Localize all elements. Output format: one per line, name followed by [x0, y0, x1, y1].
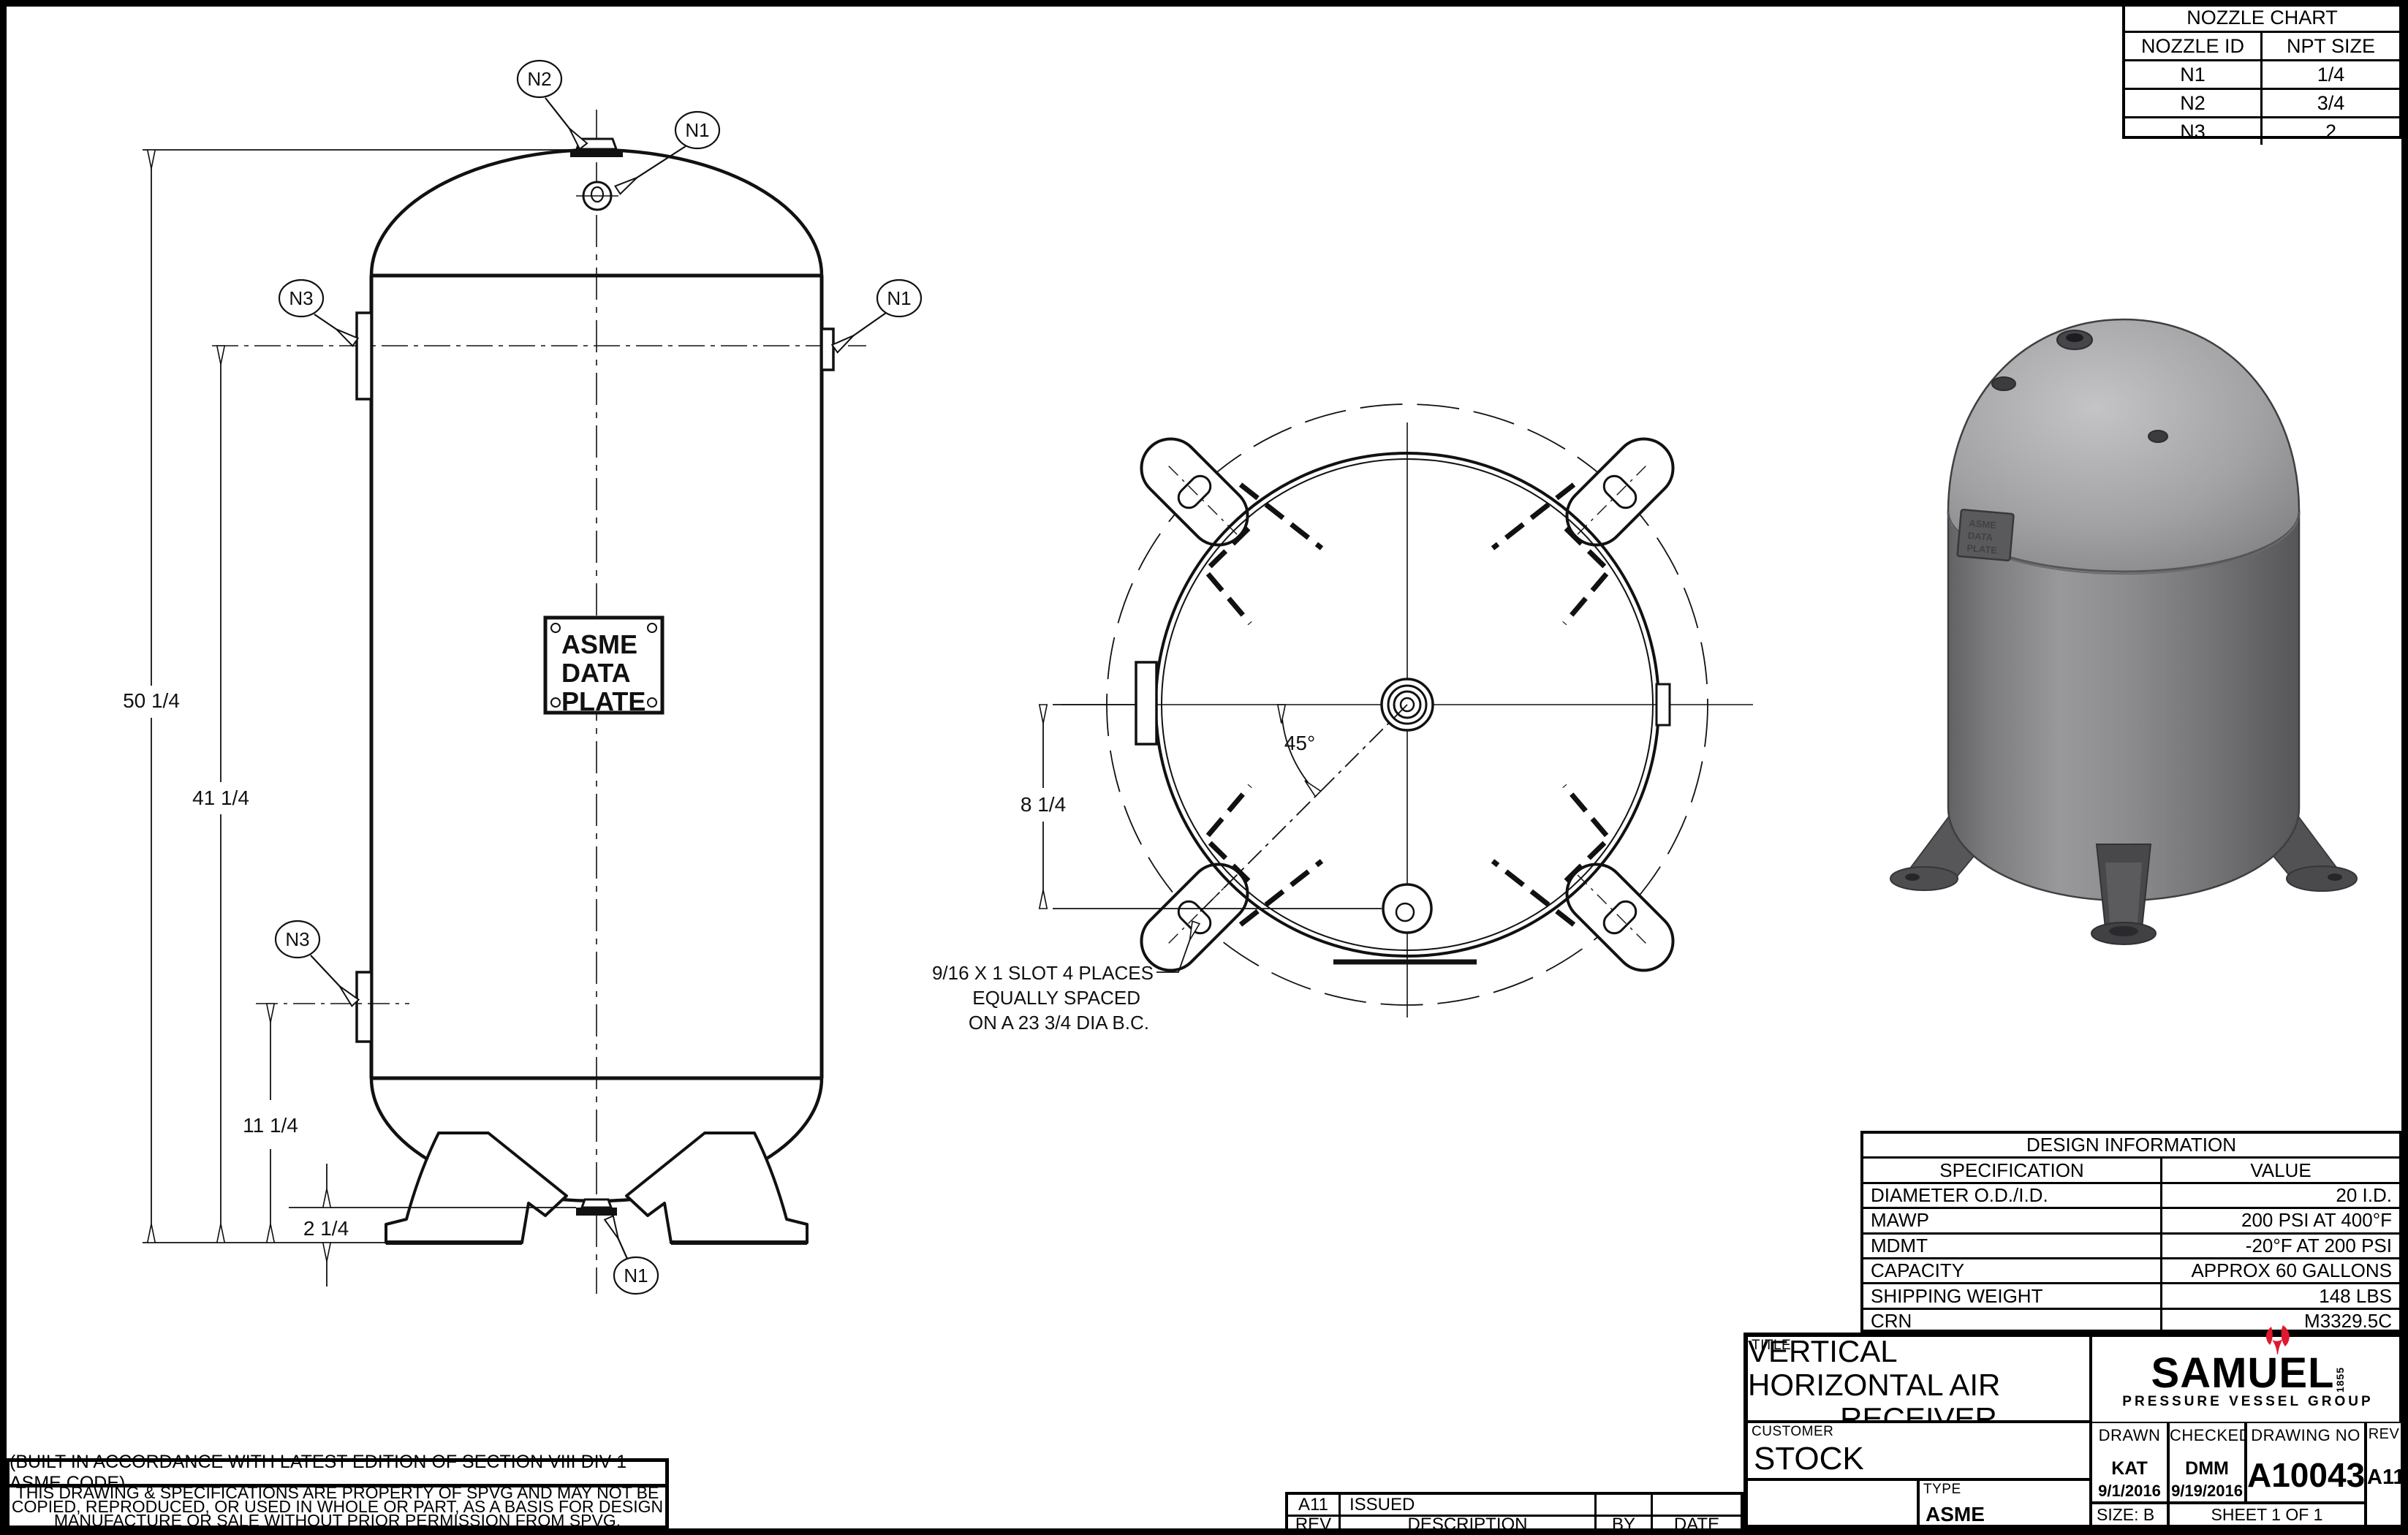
logo-cell: SAMUEL 1855 PRESSURE VESSEL GROUP [2091, 1335, 2405, 1425]
slot-note-line2: EQUALLY SPACED [972, 987, 1140, 1009]
slot-note-line1: 9/16 X 1 SLOT 4 PLACES [932, 962, 1154, 984]
drawn-by: KAT [2092, 1458, 2167, 1479]
drawing-no-value: A10043 [2247, 1455, 2364, 1495]
design-col-spec: SPECIFICATION [1863, 1159, 2162, 1181]
design-spec: MAWP [1863, 1209, 2162, 1232]
nozzle-chart-table: NOZZLE CHART NOZZLE ID NPT SIZE N1 1/4 N… [2122, 1, 2402, 139]
slot-note-line3: ON A 23 3/4 DIA B.C. [969, 1012, 1149, 1034]
property-note: THIS DRAWING & SPECIFICATIONS ARE PROPER… [6, 1487, 669, 1529]
drawing-sheet: { "nozzle_chart": { "title": "NOZZLE CHA… [0, 0, 2408, 1535]
dim-upper-text: 41 1/4 [192, 787, 249, 809]
title-cell: TITLE VERTICAL HORIZONTAL AIR RECEIVER [1746, 1335, 2091, 1422]
dim-overall-text: 50 1/4 [123, 689, 180, 712]
revision-description: ISSUED [1341, 1495, 1597, 1515]
design-spec: MDMT [1863, 1235, 2162, 1257]
checked-cell: CHECKED DMM 9/19/2016 [2168, 1422, 2246, 1503]
nozzle-id: N2 [2125, 90, 2263, 116]
dim-bc-text: 8 1/4 [1021, 793, 1066, 816]
dim-lower-text: 11 1/4 [243, 1114, 298, 1137]
nozzle-n3-upper [357, 313, 371, 399]
side-tab-left [1136, 662, 1156, 744]
rev-label: REV [2367, 1426, 2401, 1443]
iso-view: ASME DATA PLATE [1890, 319, 2357, 944]
design-spec: DIAMETER O.D./I.D. [1863, 1184, 2162, 1207]
revision-header-row: REV DESCRIPTION BY DATE [1288, 1517, 1741, 1532]
revision-by [1597, 1495, 1653, 1515]
design-row: SHIPPING WEIGHT 148 LBS [1863, 1284, 2399, 1309]
size-cell: SIZE: B [2091, 1503, 2168, 1526]
logo-name: SAMUEL [2151, 1354, 2335, 1392]
customer-cell: CUSTOMER STOCK [1746, 1422, 2091, 1479]
design-spec: CAPACITY [1863, 1259, 2162, 1282]
design-value: 20 I.D. [2162, 1184, 2399, 1207]
side-tab-right [1657, 684, 1670, 725]
design-info-title: DESIGN INFORMATION [1863, 1134, 2399, 1156]
dim-upper: 41 1/4 [192, 346, 249, 1243]
type-value: ASME [1926, 1503, 1985, 1526]
plate-text-3: PLATE [561, 686, 645, 716]
nozzle-row: N3 2 [2125, 118, 2399, 145]
nozzle-chart-col-id: NOZZLE ID [2125, 33, 2263, 59]
callout-n1-bottom: N1 [624, 1265, 648, 1286]
design-row: DIAMETER O.D./I.D. 20 I.D. [1863, 1184, 2399, 1209]
property-note-line3: MANUFACTURE OR SALE WITHOUT PRIOR PERMIS… [54, 1514, 621, 1528]
revision-header-by: BY [1597, 1517, 1653, 1532]
callout-n3-lower: N3 [285, 928, 309, 950]
bottom-view: 45° 8 1/4 9/16 X 1 SLOT 4 PLACES EQUALLY… [932, 404, 1753, 1034]
nozzle-size: 1/4 [2263, 61, 2399, 88]
nozzle-id: N3 [2125, 118, 2263, 145]
callout-n3-upper: N3 [289, 287, 313, 309]
dim-bottom-text: 2 1/4 [303, 1217, 349, 1240]
nozzle-row: N1 1/4 [2125, 61, 2399, 90]
iso-front-leg [2091, 844, 2156, 944]
type-cell: TYPE ASME [1918, 1479, 2091, 1526]
customer-value: STOCK [1754, 1441, 1864, 1477]
plate-text-1: ASME [561, 629, 637, 659]
nozzle-chart-col-size: NPT SIZE [2263, 33, 2399, 59]
design-value: APPROX 60 GALLONS [2162, 1259, 2399, 1282]
design-row: MDMT -20°F AT 200 PSI [1863, 1235, 2399, 1259]
title-line1: VERTICAL HORIZONTAL AIR [1748, 1335, 2089, 1402]
design-row: MAWP 200 PSI AT 400°F [1863, 1209, 2399, 1234]
nozzle-row: N2 3/4 [2125, 90, 2399, 118]
design-col-value: VALUE [2162, 1159, 2399, 1181]
nozzle-n1-side [822, 329, 833, 370]
front-view: ASME DATA PLATE 50 1/4 41 1/4 11 1/4 [123, 61, 921, 1294]
top-fitting [570, 139, 623, 157]
drawn-cell: DRAWN KAT 9/1/2016 [2091, 1422, 2168, 1503]
design-info-table: DESIGN INFORMATION SPECIFICATION VALUE D… [1860, 1131, 2402, 1333]
drain-port [1383, 884, 1431, 933]
checked-date: 9/19/2016 [2170, 1482, 2244, 1501]
revision-date [1653, 1495, 1741, 1515]
revision-header-rev: REV [1288, 1517, 1341, 1532]
checked-by: DMM [2170, 1458, 2244, 1479]
design-spec: CRN [1863, 1310, 2162, 1333]
revision-rev: A11 [1288, 1495, 1341, 1515]
nozzle-chart-title: NOZZLE CHART [2125, 4, 2399, 31]
rev-value: A11 [2367, 1466, 2401, 1490]
plate-text-2: DATA [561, 658, 631, 688]
design-value: 200 PSI AT 400°F [2162, 1209, 2399, 1232]
revision-table: A11 ISSUED REV DESCRIPTION BY DATE [1285, 1492, 1743, 1529]
asme-data-plate: ASME DATA PLATE [545, 618, 662, 716]
samuel-tulip-icon [2261, 1325, 2295, 1354]
drawing-no-cell: DRAWING NO A10043 [2246, 1422, 2366, 1503]
dim-angle-text: 45° [1284, 732, 1315, 754]
logo-year: 1855 [2336, 1367, 2344, 1392]
revision-row: A11 ISSUED [1288, 1495, 1741, 1517]
nozzle-n3-lower [357, 972, 371, 1042]
nozzle-size: 3/4 [2263, 90, 2399, 116]
revision-header-description: DESCRIPTION [1341, 1517, 1597, 1532]
drawing-no-label: DRAWING NO [2247, 1426, 2364, 1445]
iso-data-plate: ASME DATA PLATE [1957, 509, 2013, 561]
title-block: TITLE VERTICAL HORIZONTAL AIR RECEIVER S… [1743, 1333, 2402, 1529]
head-port [576, 182, 618, 210]
rev-cell: REV A11 [2366, 1422, 2402, 1526]
dim-lower: 11 1/4 [243, 1004, 298, 1243]
sheet-cell: SHEET 1 OF 1 [2168, 1503, 2366, 1526]
drawn-label: DRAWN [2092, 1426, 2167, 1445]
design-row: CAPACITY APPROX 60 GALLONS [1863, 1259, 2399, 1284]
type-label: TYPE [1923, 1482, 1961, 1498]
callout-n1-side: N1 [887, 287, 911, 309]
callout-n2: N2 [527, 68, 551, 90]
customer-label: CUSTOMER [1752, 1424, 1833, 1440]
iso-plate-text-2: DATA [1967, 530, 1994, 543]
design-spec: SHIPPING WEIGHT [1863, 1284, 2162, 1307]
nozzle-size: 2 [2263, 118, 2399, 145]
drawn-date: 9/1/2016 [2092, 1482, 2167, 1501]
revision-header-date: DATE [1653, 1517, 1741, 1532]
nozzle-id: N1 [2125, 61, 2263, 88]
design-row: CRN M3329.5C [1863, 1310, 2399, 1333]
checked-label: CHECKED [2170, 1426, 2244, 1445]
blank-cell [1746, 1479, 1918, 1526]
design-value: 148 LBS [2162, 1284, 2399, 1307]
design-value: -20°F AT 200 PSI [2162, 1235, 2399, 1257]
callout-n1-head: N1 [685, 119, 709, 141]
